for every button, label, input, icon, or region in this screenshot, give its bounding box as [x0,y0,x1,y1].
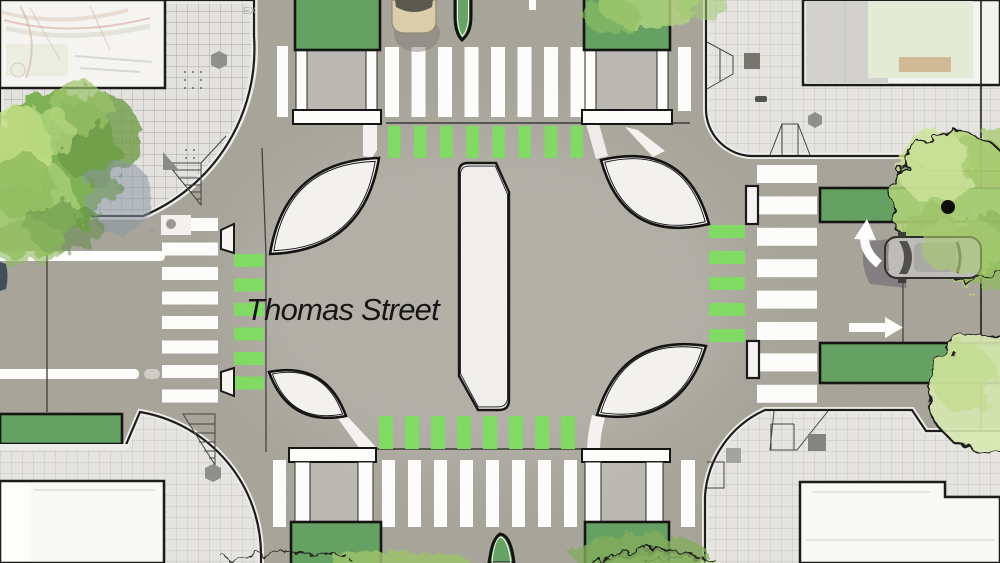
svg-text:Thomas Street: Thomas Street [246,292,441,327]
svg-text:EX.: EX. [243,6,259,17]
